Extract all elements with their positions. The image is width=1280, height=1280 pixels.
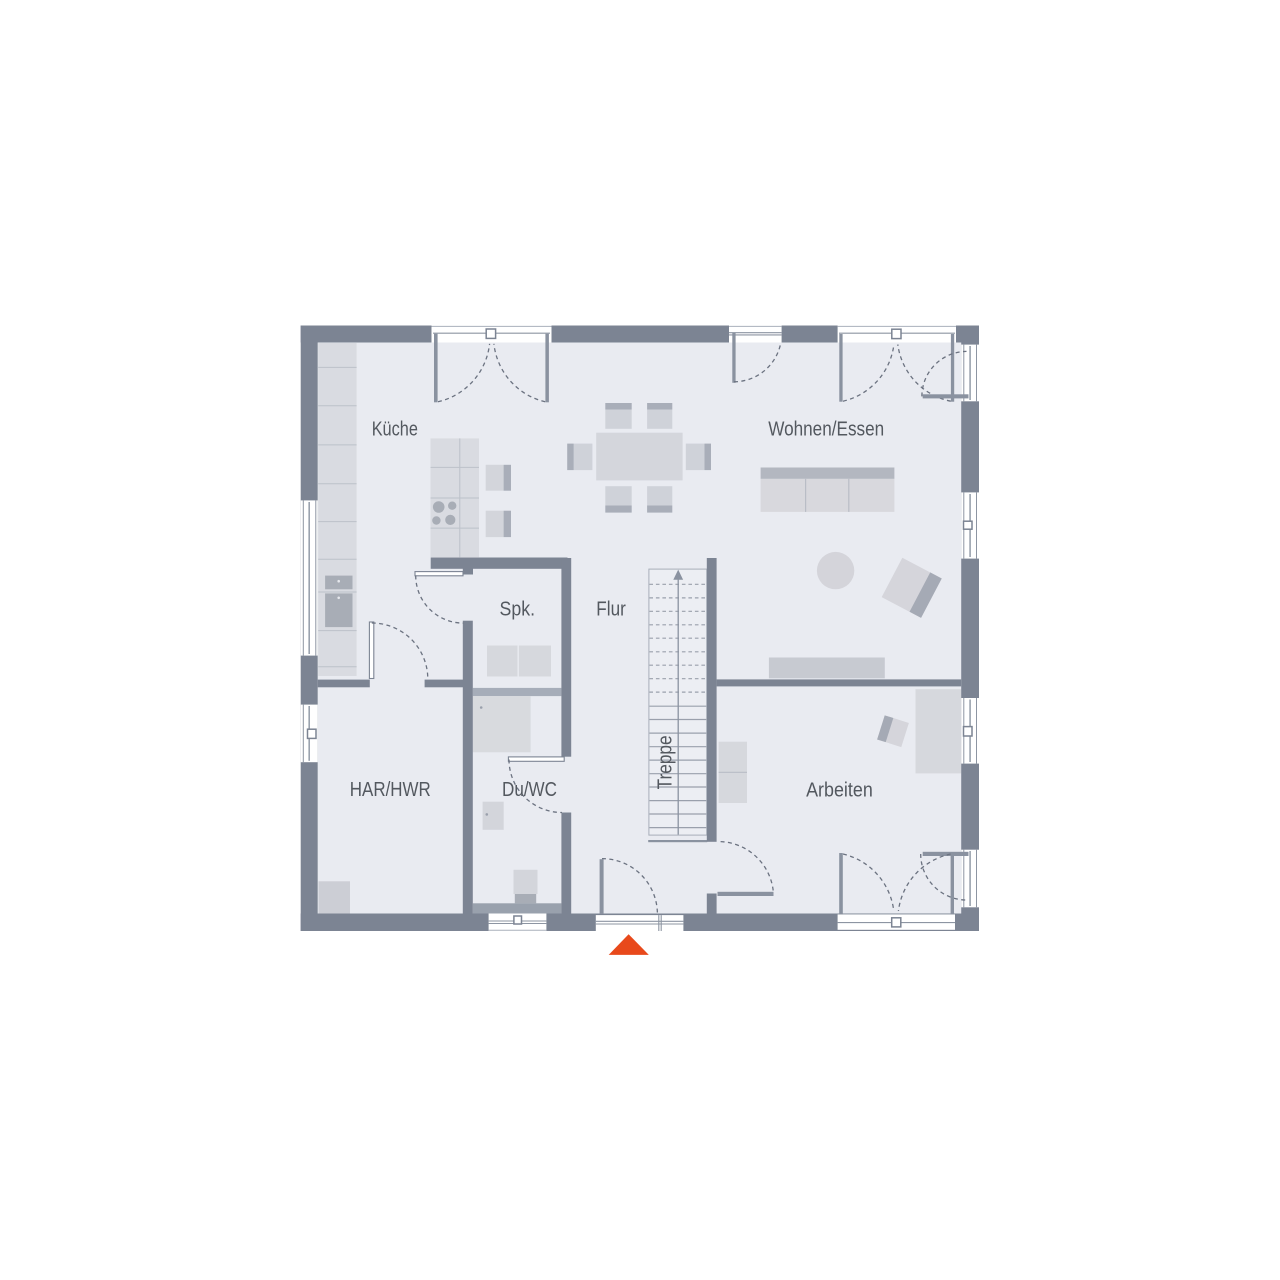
svg-text:Küche: Küche (372, 417, 418, 440)
svg-text:Du/WC: Du/WC (502, 778, 557, 801)
svg-text:HAR/HWR: HAR/HWR (350, 778, 431, 801)
svg-text:Spk.: Spk. (500, 598, 536, 621)
svg-text:Flur: Flur (596, 598, 626, 621)
svg-text:Wohnen/Essen: Wohnen/Essen (768, 418, 884, 441)
svg-text:Treppe: Treppe (654, 735, 677, 789)
svg-text:Arbeiten: Arbeiten (806, 778, 873, 801)
